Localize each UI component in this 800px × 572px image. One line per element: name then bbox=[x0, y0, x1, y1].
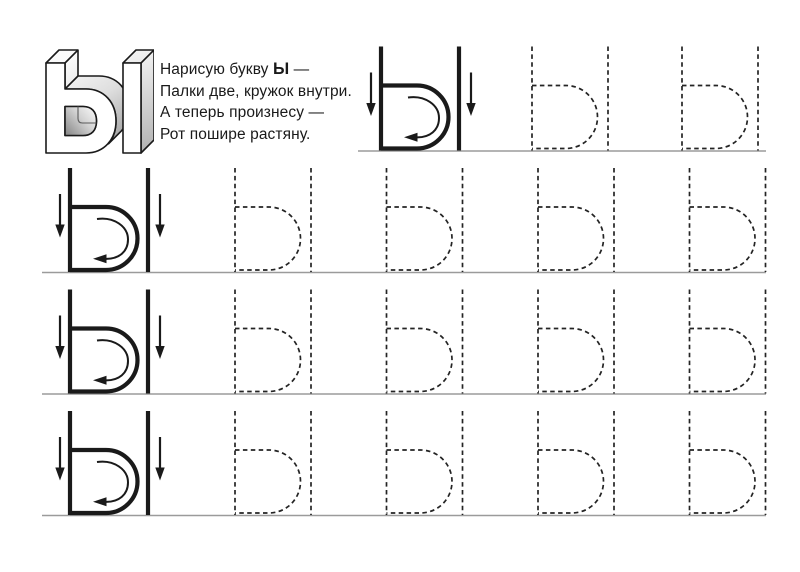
trace-row-2 bbox=[42, 168, 766, 273]
trace-letter bbox=[538, 168, 614, 272]
trace-letter bbox=[235, 290, 311, 394]
example-letter bbox=[55, 411, 164, 515]
example-letter bbox=[55, 168, 164, 272]
trace-letter bbox=[538, 290, 614, 394]
trace-letter bbox=[690, 411, 766, 515]
trace-letter bbox=[538, 411, 614, 515]
example-letter bbox=[55, 290, 164, 394]
trace-letter bbox=[690, 290, 766, 394]
trace-letter bbox=[532, 47, 608, 151]
trace-letter bbox=[387, 411, 463, 515]
trace-letter bbox=[235, 411, 311, 515]
trace-letter bbox=[387, 168, 463, 272]
trace-letter bbox=[387, 290, 463, 394]
trace-row-3 bbox=[42, 290, 766, 395]
trace-letter bbox=[682, 47, 758, 151]
example-letter bbox=[366, 47, 475, 151]
tracing-sheet bbox=[0, 0, 800, 572]
trace-letter bbox=[235, 168, 311, 272]
trace-letter bbox=[690, 168, 766, 272]
trace-row-4 bbox=[42, 411, 766, 516]
trace-row-1 bbox=[358, 47, 766, 152]
worksheet-page: Нарисую букву Ы — Палки две, кружок внут… bbox=[0, 0, 800, 572]
rows-group bbox=[42, 47, 766, 516]
